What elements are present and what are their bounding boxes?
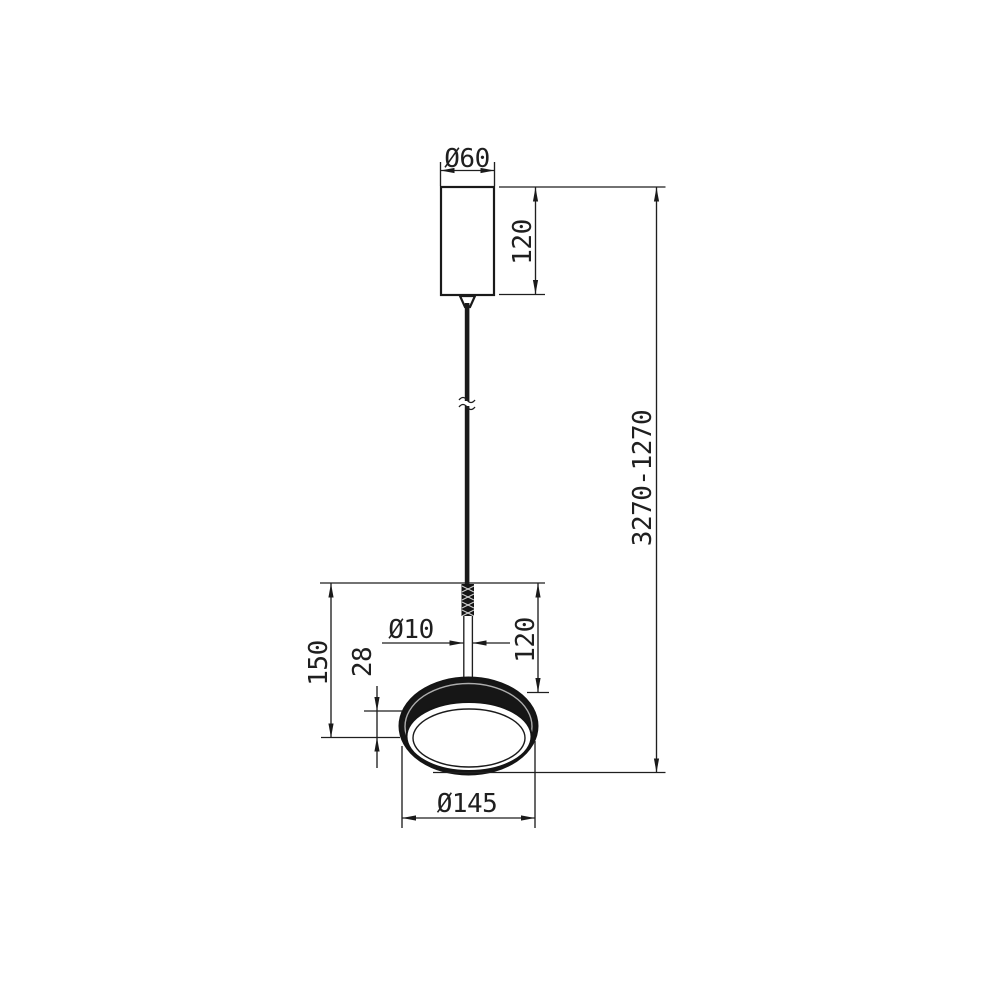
dim-shade-top-height-label: 120 [511, 617, 541, 662]
lamp-shade [400, 678, 538, 775]
dim-canopy-diameter: Ø60 [441, 144, 495, 186]
dim-rim-height: 28 [348, 647, 402, 768]
dim-fixture-height-label: 150 [304, 640, 334, 685]
cable-gripper [462, 584, 475, 616]
drawing-svg: Ø60 120 3270-1270 150 [0, 0, 1000, 1000]
dim-shade-diameter-label: Ø145 [437, 789, 498, 819]
dim-canopy-diameter-label: Ø60 [444, 144, 489, 174]
cable-break-symbol [459, 398, 475, 410]
dim-suspension-range-label: 3270-1270 [628, 410, 658, 546]
dim-canopy-height-label: 120 [508, 219, 538, 264]
dim-shade-top-height: 120 [511, 583, 549, 693]
dim-stem-diameter-label: Ø10 [388, 615, 433, 645]
dim-rim-height-label: 28 [348, 647, 378, 677]
lamp-object [400, 187, 538, 775]
shade-diffuser [407, 702, 532, 771]
stem [464, 616, 473, 680]
dim-stem-diameter: Ø10 [382, 615, 510, 646]
ceiling-canopy [441, 187, 494, 295]
technical-drawing: Ø60 120 3270-1270 150 [0, 0, 1000, 1000]
suspension-cable [465, 303, 470, 585]
dim-canopy-height: 120 [499, 187, 666, 295]
